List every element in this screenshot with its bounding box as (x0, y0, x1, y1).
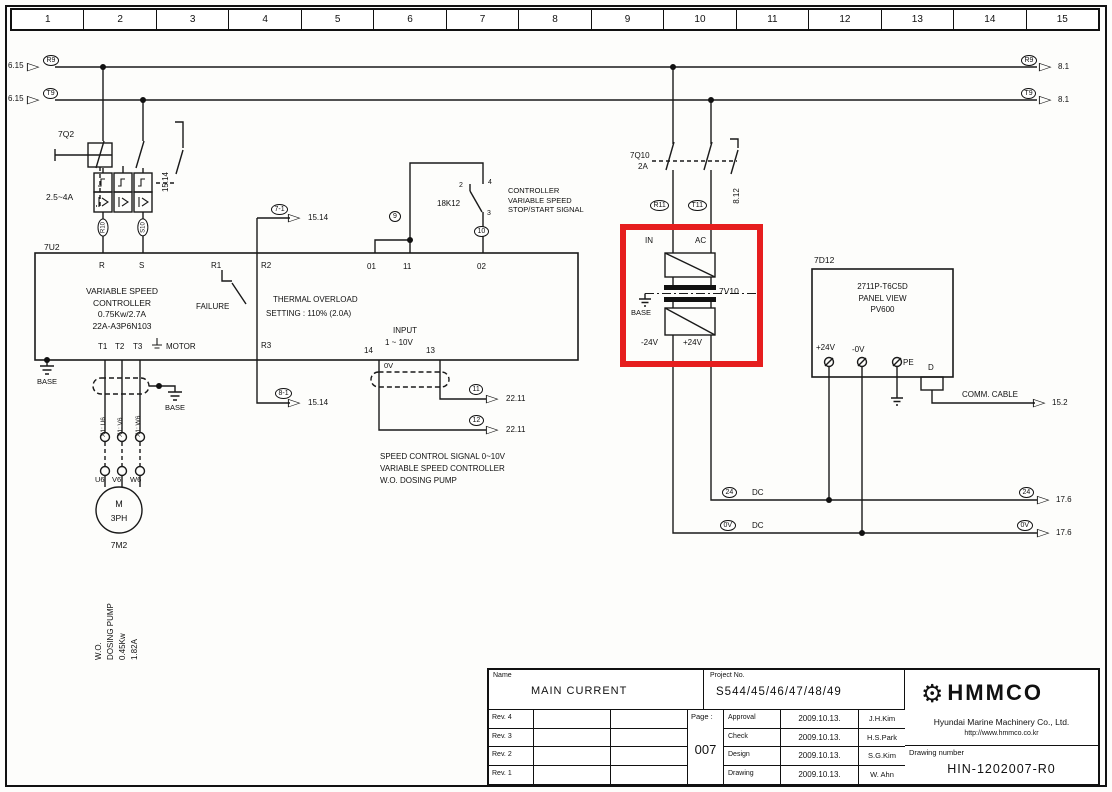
base-label: BASE (33, 377, 61, 387)
sheet-ref: 22.11 (506, 394, 525, 404)
ref-arrow-icon: ▷ (27, 93, 40, 107)
thermal-overload-label: THERMAL OVERLOAD (273, 295, 358, 305)
rev-cell-empty (534, 747, 611, 766)
terminal-t3: T3 (133, 342, 142, 352)
wire-bubble: 12 (469, 415, 484, 426)
name-cell: Name MAIN CURRENT (489, 670, 704, 710)
rating-line: DOSING PUMP (105, 570, 117, 660)
gear-icon: ⚙ (921, 681, 943, 706)
panel-model: 2711P-T6C5D PANEL VIEW PV600 (812, 281, 953, 316)
sheet-ref: 22.11 (506, 425, 525, 435)
motor-terminal-label: MOTOR (166, 342, 196, 352)
note-line: W.O. DOSING PUMP (380, 475, 505, 487)
terminal-13: 13 (426, 346, 435, 356)
terminal-x1-u6: X1: U6 (99, 403, 109, 437)
rev-row-label: Rev. 4 (489, 710, 534, 729)
company-name: HMMCO (947, 680, 1043, 706)
wire-bubble: 0V (720, 520, 736, 531)
panel-model-line: PANEL VIEW (812, 293, 953, 305)
psu-neg-label: -24V (641, 338, 658, 348)
wire-bubble: 24 (1019, 487, 1034, 498)
terminal-01: 01 (367, 262, 376, 272)
rev-cell-empty (611, 710, 688, 729)
stop-start-note: CONTROLLER VARIABLE SPEED STOP/START SIG… (508, 186, 584, 215)
input-label: INPUT (393, 326, 417, 336)
panel-pe-label: PE (903, 358, 914, 368)
terminal-w6: W6 (130, 475, 141, 485)
wire-bubble: R10 (98, 218, 109, 236)
rail-bot-right-ref: 8.1 (1058, 95, 1069, 105)
terminal-r3: R3 (261, 341, 271, 351)
note-line: VARIABLE SPEED CONTROLLER (380, 463, 505, 475)
sheet-ref: 17.6 (1056, 528, 1072, 538)
approval-date: 2009.10.13. (781, 729, 859, 748)
panel-model-line: 2711P-T6C5D (812, 281, 953, 293)
terminal-t1: T1 (98, 342, 107, 352)
rev-cell-empty (534, 766, 611, 785)
drawing-number: HIN-1202007-R0 (905, 762, 1098, 776)
wire-bubble: S10 (137, 219, 148, 237)
motor-m: M (108, 499, 130, 509)
company-cell: ⚙ HMMCO Hyundai Marine Machinery Co., Lt… (905, 670, 1098, 746)
dc-label: DC (752, 521, 764, 531)
note-line: CONTROLLER (508, 186, 584, 196)
ref-arrow-icon: ▷ (27, 60, 40, 74)
rev-cell-empty (534, 729, 611, 748)
project-label: Project No. (710, 672, 745, 679)
speed-signal-note: SPEED CONTROL SIGNAL 0~10V VARIABLE SPEE… (380, 451, 505, 487)
controller-name-line: 0.75Kw/2.7A (70, 309, 174, 321)
company-full-name: Hyundai Marine Machinery Co., Ltd. (905, 717, 1098, 727)
controller-name-line: 22A-A3P6N103 (70, 321, 174, 333)
rev-cell-empty (611, 766, 688, 785)
ref-arrow-icon: ▷ (1037, 493, 1050, 507)
relay-k12-tag: 18K12 (437, 199, 460, 209)
rating-line: 1.82A (129, 570, 141, 660)
controller-name-line: VARIABLE SPEED (70, 286, 174, 298)
wire-bubble: T11 (688, 200, 707, 211)
wire-bubble: 7-1 (271, 204, 288, 215)
breaker-q10-rating: 2A (638, 162, 648, 172)
wire-bubble: 0V (1017, 520, 1033, 531)
psu-in-label: IN (645, 236, 653, 246)
wire-bubble: R9 (43, 55, 59, 66)
approval-name: H.S.Park (859, 729, 905, 748)
rail-top-left-ref: 6.15 (8, 61, 24, 71)
ref-arrow-icon: ▷ (486, 423, 499, 437)
title-block: Name MAIN CURRENT Project No. S544/45/46… (487, 668, 1100, 786)
schematic-sheet: 1 2 3 4 5 6 7 8 9 10 11 12 13 14 15 (0, 0, 1112, 792)
panel-tag: 7D12 (814, 255, 834, 265)
ref-arrow-icon: ▷ (1039, 60, 1052, 74)
rev-cell-empty (534, 710, 611, 729)
terminal-02: 02 (477, 262, 486, 272)
drawing-number-cell: Drawing number HIN-1202007-R0 (905, 745, 1098, 784)
terminal-u6: U6 (95, 475, 105, 485)
terminal-v6: V6 (112, 475, 121, 485)
comm-cable-label: COMM. CABLE (962, 390, 1018, 400)
name-cell-label: Name (493, 672, 512, 679)
approval-role: Approval (724, 710, 781, 729)
terminal-r2: R2 (261, 261, 271, 271)
page-cell: Page : 007 (688, 710, 724, 784)
panel-model-line: PV600 (812, 304, 953, 316)
sheet-ref: 15.2 (1052, 398, 1068, 408)
approval-role: Design (724, 747, 781, 766)
ref-arrow-icon: ▷ (288, 211, 301, 225)
rev-row-label: Rev. 1 (489, 766, 534, 785)
terminal-s: S (139, 261, 144, 271)
ref-arrow-icon: ▷ (1039, 93, 1052, 107)
terminal-r1: R1 (211, 261, 221, 271)
page-number: 007 (688, 742, 723, 757)
sheet-ref: 17.6 (1056, 495, 1072, 505)
sheet-ref: 15.14 (308, 398, 328, 408)
ref-arrow-icon: ▷ (288, 396, 301, 410)
ov-label: 0V (384, 361, 393, 371)
company-logo: ⚙ HMMCO (921, 680, 1043, 706)
rev-row-label: Rev. 2 (489, 747, 534, 766)
breaker-q10-tag: 7Q10 (630, 151, 650, 161)
motor-phase: 3PH (108, 513, 130, 523)
panel-24v-label: +24V (816, 343, 835, 353)
rev-cell-empty (611, 729, 688, 748)
base-label: BASE (160, 403, 190, 413)
project-number: S544/45/46/47/48/49 (716, 686, 842, 698)
ref-arrow-icon: ▷ (1033, 396, 1046, 410)
page-label: Page : (691, 712, 713, 721)
approval-date: 2009.10.13. (781, 710, 859, 729)
company-url: http://www.hmmco.co.kr (905, 730, 1098, 737)
terminal-11: 11 (403, 262, 411, 272)
rev-row-label: Rev. 3 (489, 729, 534, 748)
controller-name-line: CONTROLLER (70, 298, 174, 310)
breaker-q2-rating: 2.5~4A (46, 192, 73, 202)
psu-pos-label: +24V (683, 338, 702, 348)
drawing-title: MAIN CURRENT (531, 685, 627, 697)
contact-3: 3 (487, 209, 491, 219)
terminal-14: 14 (364, 346, 373, 356)
approval-date: 2009.10.13. (781, 747, 859, 766)
base-label: BASE (626, 308, 656, 318)
terminal-r: R (99, 261, 105, 271)
thermal-setting-label: SETTING : 110% (2.0A) (266, 309, 351, 319)
approval-name: J.H.Kim (859, 710, 905, 729)
approval-role: Drawing (724, 766, 781, 785)
panel-0v-label: -0V (852, 345, 864, 355)
wire-bubble: 9 (389, 211, 401, 222)
approval-role: Check (724, 729, 781, 748)
breaker-q2-aux-ref: 15.14 (161, 162, 171, 202)
psu-ac-label: AC (695, 236, 706, 246)
dc-label: DC (752, 488, 764, 498)
rating-line: W.O. (93, 570, 105, 660)
rail-bot-left-ref: 6.15 (8, 94, 24, 104)
rating-line: 0.45Kw (117, 570, 129, 660)
contact-2: 2 (459, 181, 463, 191)
terminal-x1-v6: X1: V6 (116, 403, 126, 437)
rev-cell-empty (611, 747, 688, 766)
controller-tag: 7U2 (44, 242, 60, 252)
note-line: STOP/START SIGNAL (508, 205, 584, 215)
motor-tag: 7M2 (105, 540, 133, 550)
note-line: VARIABLE SPEED (508, 196, 584, 206)
drawing-number-label: Drawing number (909, 748, 964, 757)
approval-date: 2009.10.13. (781, 766, 859, 785)
ref-arrow-icon: ▷ (1037, 526, 1050, 540)
approval-name: S.G.Kim (859, 747, 905, 766)
panel-d-label: D (928, 363, 934, 373)
breaker-q10-aux-ref: 8.12 (732, 176, 742, 216)
wire-bubble: 24 (722, 487, 737, 498)
controller-name: VARIABLE SPEED CONTROLLER 0.75Kw/2.7A 22… (70, 286, 174, 332)
terminal-t2: T2 (115, 342, 124, 352)
sheet-ref: 15.14 (308, 213, 328, 223)
contact-4: 4 (488, 178, 492, 188)
wire-bubble: R9 (1021, 55, 1037, 66)
failure-label: FAILURE (196, 302, 229, 312)
motor-rating: W.O. DOSING PUMP 0.45Kw 1.82A (93, 570, 141, 660)
project-cell: Project No. S544/45/46/47/48/49 (704, 670, 905, 710)
psu-tag: 7V10 (719, 286, 739, 296)
ref-arrow-icon: ▷ (486, 392, 499, 406)
terminal-x1-w6: X1: W6 (134, 403, 144, 437)
input-range-label: 1 ~ 10V (385, 338, 413, 348)
note-line: SPEED CONTROL SIGNAL 0~10V (380, 451, 505, 463)
wire-bubble: 10 (474, 226, 489, 237)
approval-name: W. Ahn (859, 766, 905, 785)
breaker-q2-tag: 7Q2 (58, 129, 74, 139)
rail-top-right-ref: 8.1 (1058, 62, 1069, 72)
